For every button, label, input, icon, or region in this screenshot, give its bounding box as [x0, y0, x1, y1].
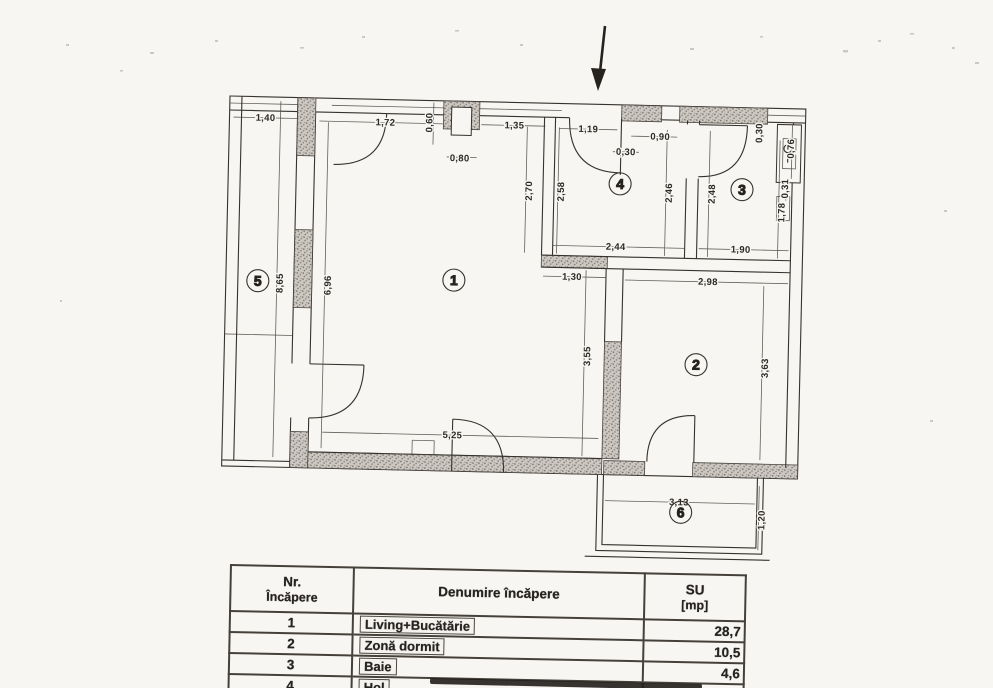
room-number-label: 1 — [450, 272, 458, 288]
room-su-cell: 10,5 — [643, 640, 744, 663]
dimension-label: 1,30 — [562, 272, 582, 283]
entrance-arrow-icon — [591, 26, 606, 91]
header-denumire: Denumire încăpere — [353, 567, 645, 619]
door-swings — [308, 112, 748, 478]
dimension-label: 6,96 — [323, 275, 334, 295]
room-nr-cell: 4 — [228, 674, 352, 688]
room-su-cell: 4,6 — [643, 661, 744, 684]
dimension-label: 2,48 — [707, 184, 718, 204]
dimension-label: 0,60 — [424, 113, 435, 133]
dimension-label: 1,90 — [731, 244, 751, 255]
dimension-label: 5,25 — [442, 430, 462, 441]
floor-plan: 1,40 1,72 0,60 0,80 1,35 1,19 0,30 0,90 … — [0, 0, 993, 562]
dimension-label: 1,78 — [776, 203, 787, 223]
dimension-label: 2,44 — [606, 242, 626, 253]
header-su: SU [mp] — [644, 573, 746, 621]
room4-room3-divider — [684, 120, 699, 258]
hatched-walls — [290, 98, 806, 479]
column-detail — [451, 107, 472, 135]
room-name-box: Hol — [359, 679, 390, 688]
room-number-label: 6 — [677, 504, 685, 520]
dimension-label: 3,55 — [582, 346, 593, 366]
room-area-table: Nr. Încăpere Denumire încăpere SU [mp] 1… — [227, 564, 747, 688]
room-nr-cell: 2 — [229, 632, 353, 655]
room-name-box: Zonă dormit — [359, 637, 444, 656]
dimension-label: 0,90 — [650, 132, 670, 143]
dimension-label: 2,46 — [664, 183, 675, 203]
room-number-label: 3 — [738, 182, 746, 198]
room-nr-cell: 3 — [229, 653, 353, 676]
header-nr-incapere: Nr. Încăpere — [230, 565, 354, 613]
room2-left-wall-upper — [605, 269, 624, 342]
header-nr-line2: Încăpere — [233, 589, 350, 606]
dimension-label: 1,19 — [578, 124, 598, 135]
dimension-label: 1,35 — [504, 120, 524, 131]
dimension-label: 1,20 — [756, 510, 767, 530]
dimension-label: 8,65 — [275, 273, 286, 293]
dimension-label: 1,40 — [256, 113, 276, 124]
room-nr-cell: 1 — [230, 611, 354, 634]
dimension-lines — [224, 98, 793, 551]
dimension-label: 2,58 — [556, 182, 567, 202]
room-number-label: 4 — [616, 176, 624, 192]
room1-room4-wall — [541, 117, 555, 255]
dimension-label: 1,72 — [375, 117, 395, 128]
room-name-box: Baie — [359, 658, 397, 676]
dimension-label: 2,98 — [698, 277, 718, 288]
dimension-label: 0,31 — [780, 178, 791, 198]
room-number-label: 5 — [254, 273, 262, 289]
room-su-cell: 28,7 — [643, 619, 744, 642]
dimension-label: 3,63 — [760, 358, 771, 378]
dimension-label: 0,30 — [754, 123, 765, 143]
room-number-label: 2 — [692, 357, 700, 373]
dimension-label: 0,80 — [450, 153, 470, 164]
header-su-line2: [mp] — [647, 597, 742, 613]
dimension-label: 0,76 — [786, 139, 797, 159]
scan-noise — [60, 30, 979, 422]
dimension-label: 0,30 — [616, 147, 636, 158]
dimension-label: 2,70 — [524, 181, 535, 201]
scanned-floor-plan-page: 1,40 1,72 0,60 0,80 1,35 1,19 0,30 0,90 … — [0, 0, 993, 688]
room-name-box: Living+Bucătărie — [360, 616, 475, 635]
